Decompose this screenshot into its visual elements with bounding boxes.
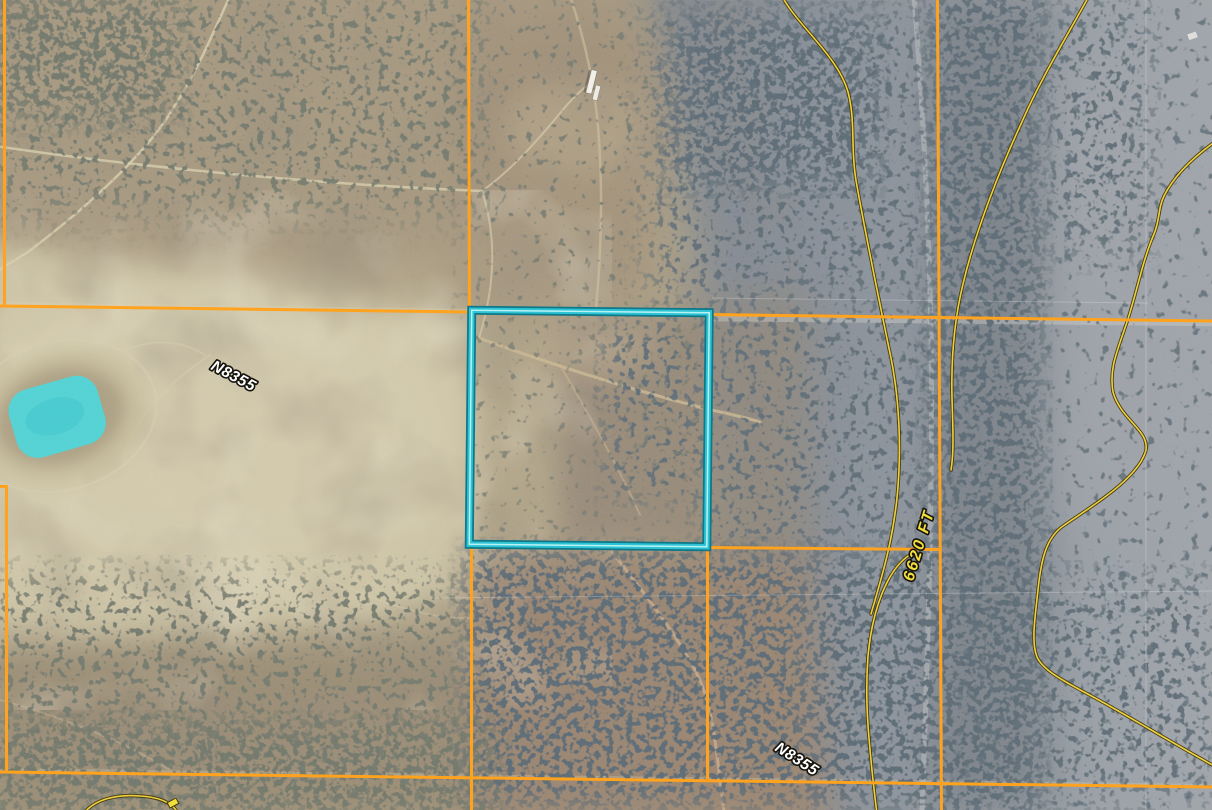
parcel-line-h-mid-right — [708, 548, 940, 550]
parcel-line-v-mid-top — [469, 0, 470, 311]
grain-overlay — [0, 0, 1212, 810]
map-viewport[interactable]: N8355 N8355 6620 FT — [0, 0, 1212, 810]
map-canvas[interactable]: N8355 N8355 6620 FT — [0, 0, 1212, 810]
